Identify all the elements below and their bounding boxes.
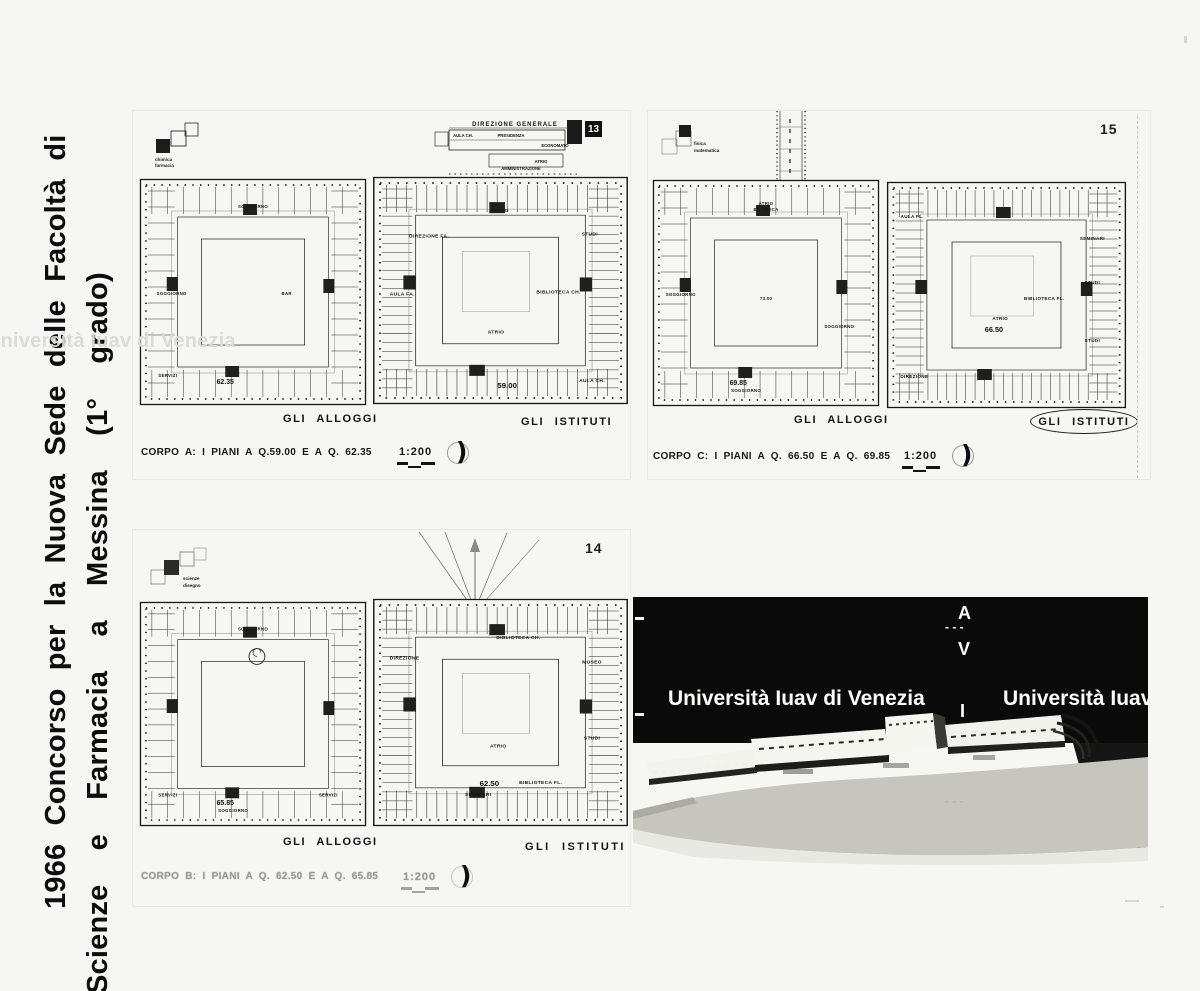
svg-text:AMMINISTRAZIONE: AMMINISTRAZIONE [501, 166, 541, 171]
svg-text:SOGGIORNO: SOGGIORNO [731, 388, 761, 393]
archive-scan-page: 1966 Concorso per la Nuova Sede delle Fa… [0, 0, 1200, 991]
svg-text:ATRIO: ATRIO [759, 201, 774, 206]
svg-text:73.00: 73.00 [760, 296, 773, 302]
scale-label: 1:200 [904, 450, 937, 462]
annex-title: DIREZIONE GENERALE [472, 122, 558, 128]
svg-text:PRESIDENZA: PRESIDENZA [498, 133, 525, 138]
plan-istituti: AULA FL.SEMINARISTUDIATRIOBIBLIOTECA FL.… [885, 180, 1128, 410]
svg-text:AULA FL.: AULA FL. [901, 214, 924, 219]
sheet-number: 15 [1100, 121, 1118, 137]
svg-text:AULA CH.: AULA CH. [579, 378, 605, 383]
watermark-letter: V [958, 639, 970, 659]
svg-text:BOTANICA: BOTANICA [753, 207, 779, 212]
key-plan-label: fisica [694, 141, 706, 146]
side-title-line-2: Scienze e Farmacia a Messina (1° grado) [82, 272, 115, 991]
direzione-generale-plan: DIREZIONE GENERALE AULA CH. PRESIDENZA E… [433, 116, 595, 182]
svg-text:ATRIO: ATRIO [535, 159, 548, 164]
faint-watermark-text: Università Iuav di Venezia [0, 330, 236, 353]
plan-label-istituti: GLI ISTITUTI [521, 416, 612, 428]
model-photo: Università Iuav di Venezia Università Iu… [633, 597, 1148, 869]
svg-text:ATRIO: ATRIO [492, 208, 509, 213]
watermark-letter: I [960, 701, 965, 721]
svg-text:SOGGIORNO: SOGGIORNO [824, 324, 854, 329]
plan-label-alloggi: GLI ALLOGGI [794, 414, 889, 426]
svg-text:BAR: BAR [282, 291, 293, 296]
watermark-letter: V [958, 813, 970, 833]
sheet-15: fisica matematica 15 ATRIOBOTANICASOGGIO… [648, 111, 1150, 479]
scale-bar [902, 465, 948, 473]
key-plan-icon: fisica matematica [658, 121, 744, 173]
svg-text:BIBLIOTECA FL.: BIBLIOTECA FL. [1024, 296, 1065, 301]
side-title-line-1: 1966 Concorso per la Nuova Sede delle Fa… [40, 134, 73, 909]
sheet-13: chimica farmacia DIREZIONE GENERALE AULA… [133, 111, 630, 479]
scan-mark [1125, 900, 1139, 902]
access-road-strip [773, 111, 811, 181]
svg-text:DIREZIONE FA.: DIREZIONE FA. [409, 233, 449, 238]
svg-text:DIREZIONE: DIREZIONE [900, 374, 928, 379]
watermark-dashes: - - - [945, 620, 964, 634]
scale-label: 1:200 [399, 446, 432, 458]
svg-text:BIBLIOTECA CH.: BIBLIOTECA CH. [536, 290, 580, 295]
scan-mark [1160, 906, 1164, 908]
svg-text:SOGGIORNO: SOGGIORNO [666, 292, 696, 297]
faint-fold-line [1137, 116, 1138, 478]
svg-text:SOGGIORNO: SOGGIORNO [157, 291, 187, 296]
plan-alloggi: ATRIOBOTANICASOGGIORNOSOGGIORNOSOGGIORNO… [651, 178, 881, 408]
scale-bar [401, 886, 447, 894]
scale-label: 1:200 [403, 871, 436, 883]
watermark-text-clipped: Università Iuav di Venezia [1003, 687, 1148, 710]
svg-text:farmacia: farmacia [155, 163, 174, 168]
key-plan-label: chimica [155, 157, 173, 162]
key-plan-icon: chimica farmacia [141, 121, 213, 173]
svg-text:AULA FA.: AULA FA. [390, 292, 415, 297]
svg-text:STUDI: STUDI [1085, 338, 1100, 343]
plan-istituti: ATRIOAULA FA.DIREZIONE FA.BIBLIOTECA CH.… [371, 175, 630, 406]
scan-mark [1184, 36, 1187, 43]
sheet-caption: CORPO A: I PIANI A Q.59.00 E A Q. 62.35 [141, 447, 372, 458]
svg-text:SERVIZI: SERVIZI [158, 373, 177, 378]
scale-bar [397, 461, 443, 469]
sheet-caption: CORPO B: I PIANI A Q. 62.50 E A Q. 65.85 [141, 871, 378, 882]
model-photo-image: Università Iuav di Venezia Università Iu… [633, 597, 1148, 869]
svg-text:59.00: 59.00 [497, 381, 517, 390]
svg-text:ATRIO: ATRIO [488, 330, 505, 335]
watermark-dashes: - - - [945, 794, 964, 808]
svg-text:62.35: 62.35 [217, 379, 234, 386]
watermark-text: Università Iuav di Venezia [668, 687, 925, 710]
svg-text:69.85: 69.85 [730, 380, 747, 387]
plan-label-alloggi: GLI ALLOGGI [283, 413, 378, 425]
north-arrow-icon: ) [951, 442, 977, 468]
svg-text:STUDI: STUDI [582, 231, 598, 236]
plan-alloggi: SOGGIORNOSOGGIORNOBARSERVIZI62.35 [138, 177, 368, 407]
svg-text:66.50: 66.50 [985, 326, 1003, 334]
svg-text:STUDI: STUDI [1085, 280, 1100, 285]
svg-text:AULA CH.: AULA CH. [453, 133, 473, 138]
sheet-14: scienze disegno 14 SOGGIORNOSERVIZISOGGI… [133, 530, 630, 906]
sheet-caption: CORPO C: I PIANI A Q. 66.50 E A Q. 69.85 [653, 451, 890, 462]
svg-text:SEMINARI: SEMINARI [1080, 236, 1105, 241]
svg-text:ECONOMATO: ECONOMATO [541, 143, 569, 148]
north-arrow-icon: ) [446, 439, 472, 465]
circled-plan-label: GLI ISTITUTI [1030, 409, 1138, 434]
north-arrow-icon: ) [450, 863, 476, 889]
svg-text:SOGGIORNO: SOGGIORNO [238, 204, 268, 209]
sheet-number: 13 [585, 121, 602, 137]
svg-text:matematica: matematica [694, 148, 720, 153]
faded-caption-row: CORPO B: I PIANI A Q. 62.50 E A Q. 65.85… [133, 530, 630, 906]
svg-text:ATRIO: ATRIO [992, 316, 1008, 321]
plan-label-istituti: GLI ISTITUTI [1038, 416, 1129, 428]
